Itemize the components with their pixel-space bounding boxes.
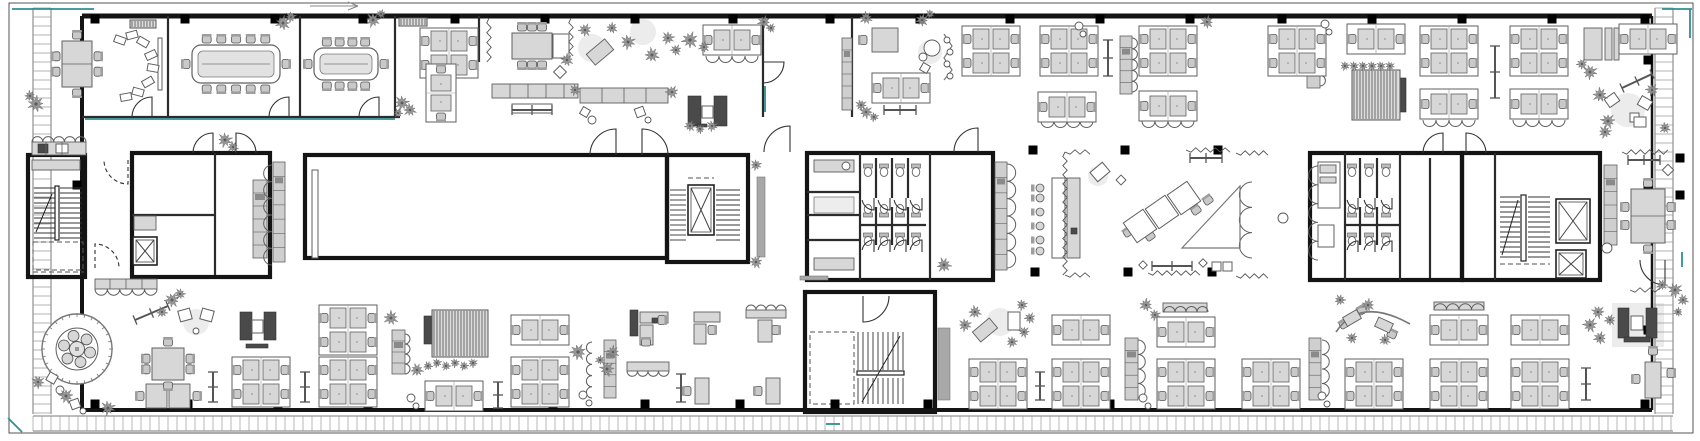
furniture-rect: [1071, 228, 1077, 234]
chair: [1139, 101, 1148, 111]
bar-stool-back: [1031, 209, 1035, 216]
desk: [431, 95, 451, 111]
chair: [1479, 325, 1488, 335]
chair: [708, 325, 717, 335]
chair-seat: [658, 316, 665, 325]
toilet: [1382, 164, 1391, 177]
plant-center: [576, 350, 579, 353]
desk-grommet: [356, 393, 358, 395]
desk: [980, 362, 996, 382]
chair-seat: [305, 60, 312, 69]
desk-cluster-quad: [1345, 359, 1403, 409]
furniture-rect: [246, 344, 268, 348]
chair-back: [202, 34, 212, 37]
chair: [921, 83, 930, 93]
desk-grommet: [1530, 329, 1532, 331]
desk-grommet: [981, 38, 983, 40]
chair-back: [193, 364, 196, 374]
furniture-rect: [814, 197, 854, 213]
door-swing: [763, 62, 784, 83]
desk-grommet: [1439, 103, 1441, 105]
furniture-rect: [312, 170, 318, 258]
plant-center: [1664, 127, 1666, 129]
chair-seat: [513, 326, 520, 335]
chair-back: [1324, 34, 1327, 44]
chair-seat: [469, 61, 476, 70]
chair-back: [1268, 34, 1271, 44]
chair: [281, 389, 290, 399]
desk-grommet: [548, 329, 550, 331]
plant-center: [34, 102, 37, 105]
chair: [658, 315, 667, 325]
desk: [522, 384, 538, 404]
desk: [1299, 53, 1315, 73]
desk-cluster-pair: [1038, 92, 1096, 122]
chair-back: [260, 34, 270, 37]
desk-grommet: [356, 317, 358, 319]
chair-seat: [1644, 180, 1653, 187]
chair-seat: [1042, 59, 1049, 68]
chair: [335, 37, 345, 46]
chair-back: [322, 89, 332, 92]
chair: [753, 386, 762, 396]
plant-center: [860, 104, 862, 106]
plant-center: [1651, 89, 1654, 92]
meeting-table: [512, 33, 552, 59]
chair-seat: [186, 365, 193, 374]
locker-item: [275, 177, 283, 183]
chair-back: [1486, 391, 1489, 401]
desk: [1170, 53, 1186, 73]
chair-back: [420, 36, 423, 46]
desk-cluster-quad: [1420, 26, 1478, 76]
desk-grommet: [1194, 371, 1196, 373]
chair: [1206, 367, 1215, 377]
chair-back: [962, 34, 965, 44]
chair-back: [288, 365, 291, 375]
plant-center: [1011, 341, 1013, 343]
locker-column: [1309, 338, 1321, 400]
plant-center: [1607, 120, 1610, 123]
chair-back: [665, 315, 668, 325]
furniture-rect: [1320, 165, 1336, 173]
desk: [1431, 94, 1447, 114]
furniture-rect: [714, 96, 727, 126]
chair-back: [1476, 99, 1479, 109]
scallop-storage: [95, 289, 157, 295]
pod-seat: [81, 334, 92, 345]
chair-seat: [1188, 35, 1195, 44]
structural-column: [1458, 15, 1467, 24]
chair-seat: [183, 60, 190, 69]
chair-seat: [1667, 369, 1674, 378]
curtain-zigzag: [1148, 271, 1200, 275]
plant-center: [1661, 284, 1663, 286]
chair: [1188, 34, 1197, 44]
furniture-rect: [240, 312, 252, 340]
chair-back: [360, 89, 370, 92]
chair: [216, 34, 226, 43]
chair-back: [759, 35, 762, 45]
plant-center: [397, 112, 399, 114]
desk-grommet: [1382, 371, 1384, 373]
chair: [1667, 368, 1676, 378]
desk: [1441, 362, 1457, 382]
structural-column: [1031, 268, 1040, 277]
chair-seat: [1089, 59, 1096, 68]
plant-center: [416, 369, 419, 372]
desk-cluster-pair: [1139, 91, 1197, 121]
plant-center: [1604, 131, 1607, 134]
chair-seat: [73, 89, 82, 96]
desk-cluster-pair: [1430, 315, 1488, 345]
chair: [1157, 327, 1166, 337]
desk-grommet: [1467, 395, 1469, 397]
stool-circle: [586, 400, 592, 406]
chair: [232, 365, 241, 375]
stool-circle: [944, 37, 950, 43]
structural-column: [91, 400, 100, 409]
chair: [560, 325, 569, 335]
chair: [1511, 325, 1520, 335]
chair-back: [1420, 34, 1423, 44]
structural-column: [1186, 15, 1195, 24]
bar-stool-back: [1031, 195, 1035, 202]
plant-center: [1599, 94, 1602, 97]
chair-seat: [234, 390, 241, 399]
desk: [973, 53, 989, 73]
desk-grommet: [1176, 331, 1178, 333]
furniture-rect: [1614, 28, 1619, 60]
curtain-zigzag: [487, 18, 491, 62]
furniture-rect: [1318, 225, 1334, 247]
chair-seat: [1317, 35, 1324, 44]
desk: [1650, 29, 1666, 49]
chair-back: [962, 58, 965, 68]
chair: [72, 30, 82, 39]
bar-stool: [1036, 184, 1044, 192]
toilet-bowl: [1365, 168, 1373, 177]
chair: [1038, 102, 1047, 112]
desk: [1431, 29, 1447, 49]
chair-seat: [1622, 221, 1629, 230]
chair-back: [1620, 220, 1623, 230]
desk: [714, 30, 730, 50]
chair-back: [335, 37, 345, 40]
chair-back: [567, 365, 570, 375]
plant-center: [770, 27, 772, 29]
chair: [380, 59, 389, 69]
chair-seat: [427, 392, 434, 401]
structural-column: [1124, 268, 1133, 277]
plant-center: [290, 16, 292, 18]
chair-back: [51, 67, 54, 77]
chair-seat: [1622, 203, 1629, 212]
stool-diamond: [1116, 175, 1126, 185]
desk-grommet: [440, 83, 442, 85]
plant-center: [627, 41, 630, 44]
tilted-seat: [114, 35, 127, 45]
chair-back: [436, 120, 446, 123]
chair: [186, 364, 195, 374]
chair: [469, 60, 478, 70]
desk-grommet: [1366, 38, 1368, 40]
chair-back: [1401, 367, 1404, 377]
chair: [1345, 391, 1354, 401]
desk: [1049, 97, 1065, 117]
chair-seat: [474, 392, 481, 401]
plant-center: [179, 293, 181, 295]
chair-back: [1157, 391, 1160, 401]
desk-grommet: [1530, 371, 1532, 373]
desk-grommet: [444, 395, 446, 397]
tilted-seat: [1634, 117, 1646, 127]
desk: [883, 78, 899, 98]
desk-grommet: [1089, 329, 1091, 331]
desk-grommet: [338, 317, 340, 319]
chair: [1206, 391, 1215, 401]
chair-back: [1018, 34, 1021, 44]
chair: [1268, 58, 1277, 68]
locker-column: [1125, 338, 1138, 400]
chair-back: [375, 389, 378, 399]
desk-grommet: [1656, 38, 1658, 40]
chair-seat: [164, 382, 173, 389]
chair: [163, 382, 173, 391]
desk: [1451, 29, 1467, 49]
chair: [231, 85, 241, 94]
plant-center: [611, 27, 613, 29]
chair-back: [347, 37, 357, 40]
desk-cluster-quad: [319, 357, 377, 407]
chair-back: [1476, 34, 1479, 44]
chair: [1469, 34, 1478, 44]
chair: [511, 389, 520, 399]
desk: [456, 386, 472, 406]
chair-seat: [971, 392, 978, 401]
chair: [1510, 58, 1519, 68]
desk-grommet: [1548, 371, 1550, 373]
desk: [1063, 320, 1079, 340]
plant-center: [974, 311, 977, 314]
desk-cluster-quad: [1430, 359, 1488, 409]
plant-center: [612, 351, 615, 354]
pod-seat: [58, 340, 69, 351]
chair-back: [1096, 34, 1099, 44]
furniture-rect: [814, 258, 854, 270]
chair-back: [163, 389, 173, 392]
chair: [1560, 367, 1569, 377]
chair-back: [682, 386, 685, 396]
plant-center: [1145, 304, 1148, 307]
plant-center: [1021, 304, 1023, 306]
chair: [135, 391, 144, 401]
chair-back: [476, 36, 479, 46]
chair-seat: [1479, 368, 1486, 377]
chair-back: [779, 325, 782, 335]
chair-seat: [1479, 392, 1486, 401]
chair-back: [1094, 102, 1097, 112]
desk: [350, 360, 366, 380]
conference-table-group: [181, 34, 291, 94]
desk-cluster-quad: [1511, 359, 1569, 409]
desk-grommet: [462, 395, 464, 397]
chair: [1430, 367, 1439, 377]
chair-back: [1108, 391, 1111, 401]
chair-seat: [1089, 35, 1096, 44]
chair-back: [527, 68, 537, 71]
chair-seat: [1042, 35, 1049, 44]
furniture-rect: [1320, 177, 1336, 183]
chair-back: [567, 389, 570, 399]
plant-center: [1023, 331, 1025, 333]
curtain-zigzag: [1186, 148, 1230, 152]
furniture-rect: [1605, 28, 1612, 60]
pod-seat: [62, 353, 73, 364]
chair: [511, 325, 520, 335]
desk-grommet: [1530, 395, 1532, 397]
chair: [1242, 367, 1251, 377]
desk: [243, 360, 259, 380]
chair: [1631, 374, 1640, 384]
furniture-rect: [264, 312, 276, 340]
chair-back: [1511, 391, 1514, 401]
chair-back: [1052, 325, 1055, 335]
desk-grommet: [1279, 395, 1281, 397]
desk: [330, 384, 346, 404]
desk: [1000, 362, 1016, 382]
toilet-bowl: [1348, 168, 1356, 177]
toilet: [1348, 164, 1357, 177]
plant-center: [755, 164, 757, 166]
chair-seat: [1159, 328, 1166, 337]
chair: [1510, 34, 1519, 44]
chair-seat: [321, 314, 328, 323]
plant-center: [65, 395, 68, 398]
stool-circle: [579, 391, 587, 399]
chair: [1643, 178, 1653, 187]
chair: [1040, 34, 1049, 44]
desk-grommet: [1547, 62, 1549, 64]
chair-seat: [1559, 59, 1566, 68]
desk-grommet: [1071, 329, 1073, 331]
curtain-zigzag: [1065, 150, 1090, 154]
scallop-storage: [1513, 120, 1565, 127]
plant-center: [1339, 299, 1341, 301]
chair-seat: [217, 85, 226, 92]
curtain-zigzag: [1065, 273, 1090, 277]
chair: [537, 61, 547, 70]
chair-seat: [528, 24, 537, 31]
pod-seat: [68, 330, 79, 341]
furniture-rect: [1584, 28, 1602, 60]
chair: [193, 391, 202, 401]
chair-seat: [281, 366, 288, 375]
chair-back: [1038, 102, 1041, 112]
chair: [347, 37, 357, 46]
chair-seat: [1054, 368, 1061, 377]
toilet: [880, 164, 889, 177]
plant-center: [161, 311, 163, 313]
tilted-seat: [141, 76, 154, 88]
chair-back: [425, 391, 428, 401]
chair: [560, 365, 569, 375]
chair: [1469, 58, 1478, 68]
desk: [1188, 386, 1204, 406]
chair-seat: [1667, 203, 1674, 212]
chair-seat: [1560, 392, 1567, 401]
chair: [420, 36, 429, 46]
chair: [72, 89, 82, 98]
desk: [451, 31, 467, 51]
chair: [141, 354, 150, 364]
chair-back: [216, 34, 226, 37]
chair: [1648, 346, 1658, 355]
desk-grommet: [1384, 38, 1386, 40]
chair-seat: [964, 59, 971, 68]
chair-back: [1213, 391, 1216, 401]
chair-seat: [469, 37, 476, 46]
door-swing: [104, 160, 128, 184]
desk-cluster-quad: [1157, 359, 1215, 409]
desk-cluster-quad: [1510, 26, 1568, 76]
desk: [1541, 53, 1557, 73]
desk-grommet: [1261, 371, 1263, 373]
chair-seat: [1668, 35, 1675, 44]
chair-back: [1643, 252, 1653, 255]
desk-grommet: [1089, 395, 1091, 397]
chair-back: [231, 92, 241, 95]
desk-grommet: [1287, 62, 1289, 64]
chair-seat: [1479, 326, 1486, 335]
chair-back: [1511, 367, 1514, 377]
chair: [360, 82, 370, 91]
chair-back: [1347, 34, 1350, 44]
chair: [368, 365, 377, 375]
desk: [1063, 362, 1079, 382]
desk-grommet: [988, 395, 990, 397]
chair-back: [319, 313, 322, 323]
chair-back: [101, 51, 104, 61]
plant-center: [37, 381, 40, 384]
tilted-seat: [69, 398, 81, 410]
locker-column: [995, 162, 1007, 270]
desk: [263, 360, 279, 380]
desk-cluster-pair: [426, 64, 456, 122]
desk-grommet: [1548, 329, 1550, 331]
door-swing: [1423, 133, 1443, 153]
desk: [1441, 320, 1457, 340]
scallop-storage: [627, 371, 669, 376]
chair: [1559, 58, 1568, 68]
stool-circle: [1602, 243, 1612, 253]
chair: [319, 337, 328, 347]
scallop-storage: [1423, 120, 1475, 127]
chair-back: [1567, 391, 1570, 401]
stair-rail: [857, 371, 904, 375]
floor-plan: [0, 0, 1700, 441]
chair-back: [537, 68, 547, 71]
chair-seat: [1394, 368, 1401, 377]
structural-column: [1121, 146, 1130, 155]
furniture-rect: [1163, 303, 1207, 312]
tilted-seat: [120, 93, 132, 102]
chair-seat: [232, 36, 241, 43]
desk-cluster-quad: [969, 359, 1027, 409]
chair-seat: [437, 113, 446, 120]
chair-back: [527, 22, 537, 25]
desk: [1253, 362, 1269, 382]
